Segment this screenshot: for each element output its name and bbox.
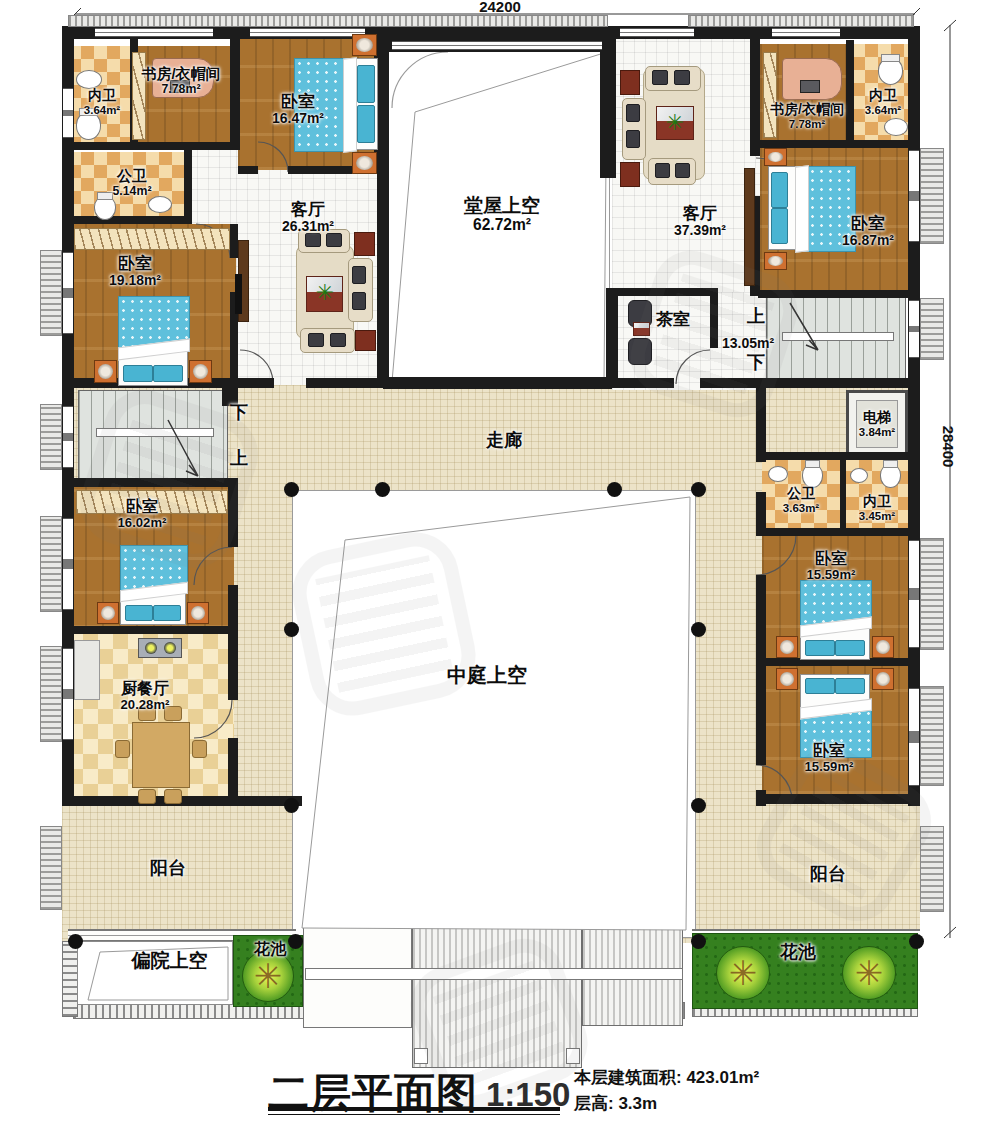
- room-name: 偏院上空: [132, 950, 208, 971]
- room-label-tangwu: 堂屋上空 62.72m²: [428, 195, 576, 234]
- side-table: [355, 330, 376, 351]
- canopy-pillar-4: [566, 1048, 580, 1064]
- room-name: 书房/衣帽间: [770, 101, 844, 117]
- wall: [600, 26, 616, 178]
- wall: [756, 378, 766, 462]
- room-name: 内卫: [88, 87, 116, 103]
- room-area: 16.02m²: [92, 516, 192, 531]
- nightstand: [764, 148, 787, 166]
- window-sill: [920, 538, 944, 650]
- room-label-gongwei-tl: 公卫 5.14m²: [92, 168, 172, 199]
- facade-sill: [688, 15, 914, 27]
- column: [284, 482, 299, 497]
- desk: [782, 58, 842, 100]
- nightstand: [764, 252, 787, 270]
- room-area: 20.28m²: [95, 698, 195, 713]
- room-name: 卧室: [281, 92, 315, 111]
- info-text: 层高: 3.3m: [574, 1094, 657, 1113]
- wall: [306, 378, 383, 388]
- dimension-width: 24200: [458, 0, 542, 15]
- window: [63, 518, 73, 610]
- room-label-yangtai-l: 阳台: [138, 858, 198, 878]
- stair-direction: 上: [230, 448, 248, 468]
- room-name: 卧室: [118, 254, 152, 273]
- room-label-yangtai-r: 阳台: [798, 864, 858, 884]
- toilet: [878, 58, 903, 85]
- dining-chair: [115, 740, 130, 758]
- wall: [62, 796, 302, 806]
- facade-sill: [68, 15, 608, 27]
- window-sill: [920, 298, 944, 360]
- sofa-cushion: [326, 233, 342, 247]
- wall: [238, 166, 258, 174]
- window-sill: [40, 516, 62, 612]
- sofa-cushion: [626, 130, 640, 148]
- plant-icon: ✳: [312, 280, 338, 306]
- info-text: 本层建筑面积: 423.01m²: [574, 1068, 759, 1087]
- info-floor-height: 层高: 3.3m: [574, 1092, 657, 1115]
- sofa-cushion: [330, 333, 346, 347]
- room-name: 卧室: [815, 550, 847, 567]
- dining-chair: [138, 789, 156, 804]
- computer-monitor-icon: [800, 80, 820, 93]
- column: [691, 798, 706, 813]
- room-area: 15.59m²: [786, 760, 872, 775]
- room-name: 内卫: [863, 493, 891, 509]
- room-label-keting-r: 客厅 37.39m²: [650, 204, 750, 239]
- wall: [62, 626, 238, 634]
- plant-icon: ✳: [662, 110, 688, 136]
- room-label-woshi-tr: 卧室 16.87m²: [818, 214, 918, 249]
- stairs-left-railing: [96, 428, 214, 437]
- wall: [228, 738, 238, 798]
- dimension-height: 28400: [940, 426, 957, 468]
- room-area: 62.72m²: [428, 216, 576, 233]
- nightstand: [94, 360, 117, 383]
- column: [284, 798, 299, 813]
- sink: [884, 118, 908, 136]
- wall: [383, 377, 612, 389]
- column: [607, 482, 622, 497]
- dining-chair: [192, 740, 207, 758]
- stair-direction: 下: [230, 402, 248, 422]
- nightstand: [352, 34, 377, 56]
- wall: [184, 150, 192, 224]
- title-underline: [268, 1107, 560, 1111]
- room-label-chashi: 茶室: [648, 310, 698, 329]
- sofa-cushion: [674, 70, 690, 85]
- wall: [756, 492, 766, 532]
- sink: [850, 468, 868, 483]
- wall: [612, 378, 674, 388]
- room-label-zhongting: 中庭上空: [432, 664, 542, 686]
- bed: [800, 580, 870, 660]
- sofa-cushion: [352, 266, 366, 284]
- wall: [377, 166, 389, 384]
- wall: [62, 478, 238, 487]
- column: [909, 934, 924, 949]
- canopy-pillar-2: [566, 878, 580, 894]
- room-label-neiwei-tr: 内卫 3.64m²: [852, 88, 914, 117]
- room-name: 茶室: [656, 310, 690, 329]
- nightstand: [872, 636, 894, 658]
- dimension-value: 24200: [479, 0, 521, 15]
- sofa-cushion: [308, 333, 324, 347]
- room-label-woshi-tl: 卧室 16.47m²: [248, 92, 348, 127]
- column: [68, 934, 83, 949]
- wall: [228, 487, 238, 547]
- title-underline-thin: [268, 1114, 560, 1115]
- column: [691, 934, 706, 949]
- room-name: 中庭上空: [447, 664, 527, 686]
- tree-right-1: ✳: [716, 946, 770, 1000]
- room-label-neiwei-r: 内卫 3.45m²: [846, 494, 908, 523]
- window: [909, 300, 919, 358]
- courtyard-void-floor: [292, 490, 696, 938]
- room-name: 客厅: [291, 200, 325, 219]
- dining-table: [132, 722, 190, 788]
- room-name: 走廊: [486, 430, 522, 450]
- wardrobe: [74, 228, 230, 250]
- window: [63, 406, 73, 468]
- room-area: 5.14m²: [92, 185, 172, 199]
- canopy-pillar-1: [414, 878, 428, 894]
- room-area: 26.31m²: [258, 219, 358, 235]
- window: [392, 41, 602, 50]
- room-name: 公卫: [117, 167, 147, 184]
- window: [772, 28, 840, 37]
- room-label-woshi-r1: 卧室 15.59m²: [788, 550, 874, 583]
- side-table: [620, 70, 640, 95]
- wall: [62, 142, 232, 150]
- column: [375, 482, 390, 497]
- wall: [756, 794, 920, 804]
- toilet: [94, 196, 116, 220]
- window-sill: [920, 148, 944, 244]
- dimension-value: 28400: [940, 426, 957, 468]
- column: [284, 622, 299, 637]
- room-label-keting-l: 客厅 26.31m²: [258, 200, 358, 235]
- wall: [606, 288, 618, 384]
- room-area: 3.84m²: [848, 426, 906, 439]
- tree-right-2: ✳: [842, 946, 896, 1000]
- wall: [758, 290, 920, 298]
- column: [691, 482, 706, 497]
- nightstand: [872, 668, 894, 690]
- room-name: 花池: [780, 942, 816, 962]
- sofa-cushion: [655, 163, 670, 178]
- sofa-cushion: [626, 104, 640, 122]
- window-sill: [40, 404, 62, 470]
- room-area: 19.18m²: [85, 273, 185, 289]
- column: [691, 622, 706, 637]
- room-area: 13.05m²: [716, 336, 780, 352]
- nightstand: [352, 152, 377, 174]
- room-name: 阳台: [810, 864, 846, 884]
- room-name: 花池: [254, 940, 286, 957]
- wall: [750, 26, 760, 156]
- sofa-cushion: [675, 163, 690, 178]
- wall: [606, 288, 718, 296]
- bed: [120, 545, 186, 625]
- sink: [768, 466, 788, 482]
- canopy-pillar-3: [414, 1048, 428, 1064]
- room-area: 3.45m²: [846, 510, 908, 523]
- dining-chair: [164, 789, 182, 804]
- wall: [228, 585, 238, 700]
- room-area: 15.59m²: [788, 568, 874, 583]
- wall: [62, 216, 188, 224]
- tv-icon: [235, 274, 242, 314]
- room-area: 3.64m²: [852, 104, 914, 117]
- wall: [756, 575, 766, 765]
- nightstand: [776, 636, 798, 658]
- room-name: 卧室: [851, 214, 885, 233]
- room-label-huachi-r: 花池: [770, 942, 826, 962]
- window: [909, 688, 919, 786]
- armchair: [628, 338, 652, 365]
- window-sill: [40, 250, 62, 336]
- room-label-zoulang: 走廊: [476, 430, 532, 450]
- room-label-chucanting: 厨餐厅 20.28m²: [95, 680, 195, 713]
- room-name: 书房/衣帽间: [141, 65, 220, 82]
- sofa-cushion: [652, 70, 668, 85]
- room-name: 内卫: [869, 87, 897, 103]
- room-name: 卧室: [126, 498, 158, 515]
- stair-label-down-right: 下: [744, 352, 768, 372]
- room-area: 16.87m²: [818, 233, 918, 249]
- stair-label-up-left: 上: [226, 448, 252, 468]
- wall: [700, 378, 920, 388]
- room-area: 7.78m²: [118, 83, 244, 97]
- stair-label-up-right: 上: [744, 306, 768, 326]
- room-label-dianti: 电梯 3.84m²: [848, 410, 906, 439]
- side-table: [620, 162, 640, 187]
- nightstand: [97, 602, 119, 624]
- window: [63, 252, 73, 334]
- room-name: 电梯: [863, 409, 891, 425]
- room-area: 37.39m²: [650, 223, 750, 239]
- toilet: [880, 464, 901, 488]
- nightstand: [189, 360, 212, 383]
- room-area: 7.78m²: [746, 118, 868, 131]
- page-title: 二层平面图: [268, 1066, 478, 1121]
- room-area: 3.63m²: [768, 502, 834, 515]
- window-sill: [40, 826, 62, 910]
- bed: [118, 296, 188, 386]
- room-name: 厨餐厅: [121, 680, 169, 697]
- wall: [230, 224, 238, 258]
- room-area-chashi: 13.05m²: [716, 336, 780, 352]
- room-label-woshi-r2: 卧室 15.59m²: [786, 742, 872, 775]
- side-table: [354, 232, 375, 256]
- room-name: 卧室: [813, 742, 845, 759]
- window: [63, 648, 73, 740]
- info-built-area: 本层建筑面积: 423.01m²: [574, 1066, 759, 1089]
- cooktop: [138, 638, 182, 658]
- canopy-cross-rail: [305, 968, 683, 980]
- stair-direction: 上: [747, 306, 765, 326]
- room-label-gongwei-r: 公卫 3.63m²: [768, 486, 834, 515]
- room-label-shufang-tr: 书房/衣帽间 7.78m²: [746, 102, 868, 131]
- room-label-shufang-tl: 书房/衣帽间 7.78m²: [118, 66, 244, 97]
- window-sill: [40, 646, 62, 742]
- room-name: 堂屋上空: [464, 195, 540, 216]
- nightstand: [776, 668, 798, 690]
- window-sill: [920, 686, 944, 786]
- room-area: 3.64m²: [70, 104, 134, 117]
- fence-side-left: [62, 941, 78, 1017]
- window: [620, 28, 694, 37]
- room-name: 客厅: [683, 204, 717, 223]
- wall: [756, 528, 920, 536]
- sofa-cushion: [305, 233, 321, 247]
- stair-label-down-left: 下: [226, 402, 252, 422]
- room-name: 公卫: [787, 485, 815, 501]
- window-sill: [920, 826, 944, 912]
- room-name: 阳台: [150, 858, 186, 878]
- room-label-pianyuan: 偏院上空: [112, 950, 227, 971]
- wall: [758, 140, 920, 148]
- room-label-woshi-l: 卧室 19.18m²: [85, 254, 185, 289]
- window: [909, 540, 919, 648]
- window: [250, 28, 365, 37]
- room-label-huachi-l: 花池: [244, 940, 296, 958]
- stairs-right-railing: [782, 332, 894, 341]
- room-label-woshi-l2: 卧室 16.02m²: [92, 498, 192, 531]
- sofa-cushion: [352, 292, 366, 310]
- floor-plan-sheet: ✳ ✳ ✳: [0, 0, 1000, 1121]
- stair-direction: 下: [747, 352, 765, 372]
- room-area: 16.47m²: [248, 111, 348, 127]
- window: [95, 28, 213, 37]
- wall: [756, 452, 920, 460]
- nightstand: [187, 602, 209, 624]
